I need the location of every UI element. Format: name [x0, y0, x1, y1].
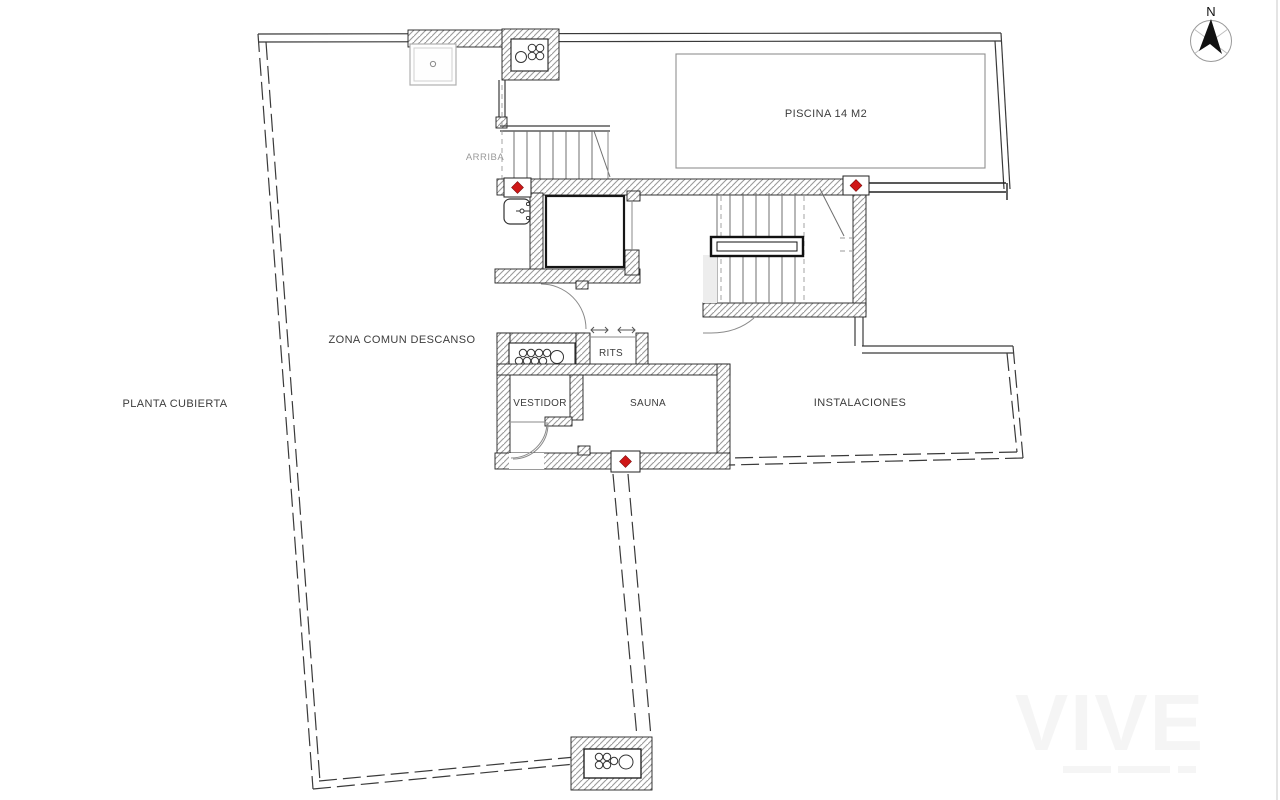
room-label-sauna: SAUNA [630, 398, 666, 409]
landing-floor [703, 255, 717, 303]
sink-icon [504, 199, 530, 224]
arriba-stairs [496, 85, 610, 180]
room-label-rits: RITS [599, 348, 623, 359]
pipe-shaft-box [571, 737, 652, 790]
vent-arrows-icon [591, 327, 635, 333]
room-label-instalaciones: INSTALACIONES [814, 397, 906, 409]
valve-marker-icon [504, 178, 531, 197]
watermark-tagline-bar [1063, 766, 1111, 773]
north-needle-icon [1199, 19, 1222, 54]
watermark-tagline-bar [1118, 766, 1170, 773]
floor-plan-drawing: N PLANTA CUBIERTA ZONA COMUN DESCANSO PI… [0, 0, 1280, 800]
shower-tray [410, 44, 456, 85]
watermark-tagline-bar [1178, 766, 1196, 773]
room-label-zona-comun: ZONA COMUN DESCANSO [329, 334, 476, 346]
elevator-shaft [546, 196, 624, 267]
valve-marker-icon [843, 176, 869, 195]
plan-title: PLANTA CUBIERTA [122, 398, 227, 410]
watermark-logo: VIVE [1015, 678, 1205, 767]
watermark: VIVE [1015, 678, 1205, 773]
valve-marker-icon [611, 451, 640, 472]
floor-plan-sheet: N PLANTA CUBIERTA ZONA COMUN DESCANSO PI… [0, 0, 1280, 800]
compass-north-label: N [1206, 4, 1215, 19]
access-corridor [613, 474, 651, 737]
pipes-icon [515, 349, 563, 364]
door-arc [711, 318, 754, 333]
instalaciones-outline [729, 317, 1023, 465]
door-opening [509, 453, 544, 469]
compass-rose: N [1191, 4, 1232, 62]
room-label-vestidor: VESTIDOR [513, 398, 567, 409]
room-label-piscina: PISCINA 14 M2 [785, 108, 867, 120]
stair-rail [711, 237, 803, 256]
main-stairwell [703, 189, 866, 333]
door-arc [541, 284, 586, 329]
stairs-direction-label: ARRIBA [466, 152, 505, 163]
boiler-shaft-room [499, 29, 559, 127]
